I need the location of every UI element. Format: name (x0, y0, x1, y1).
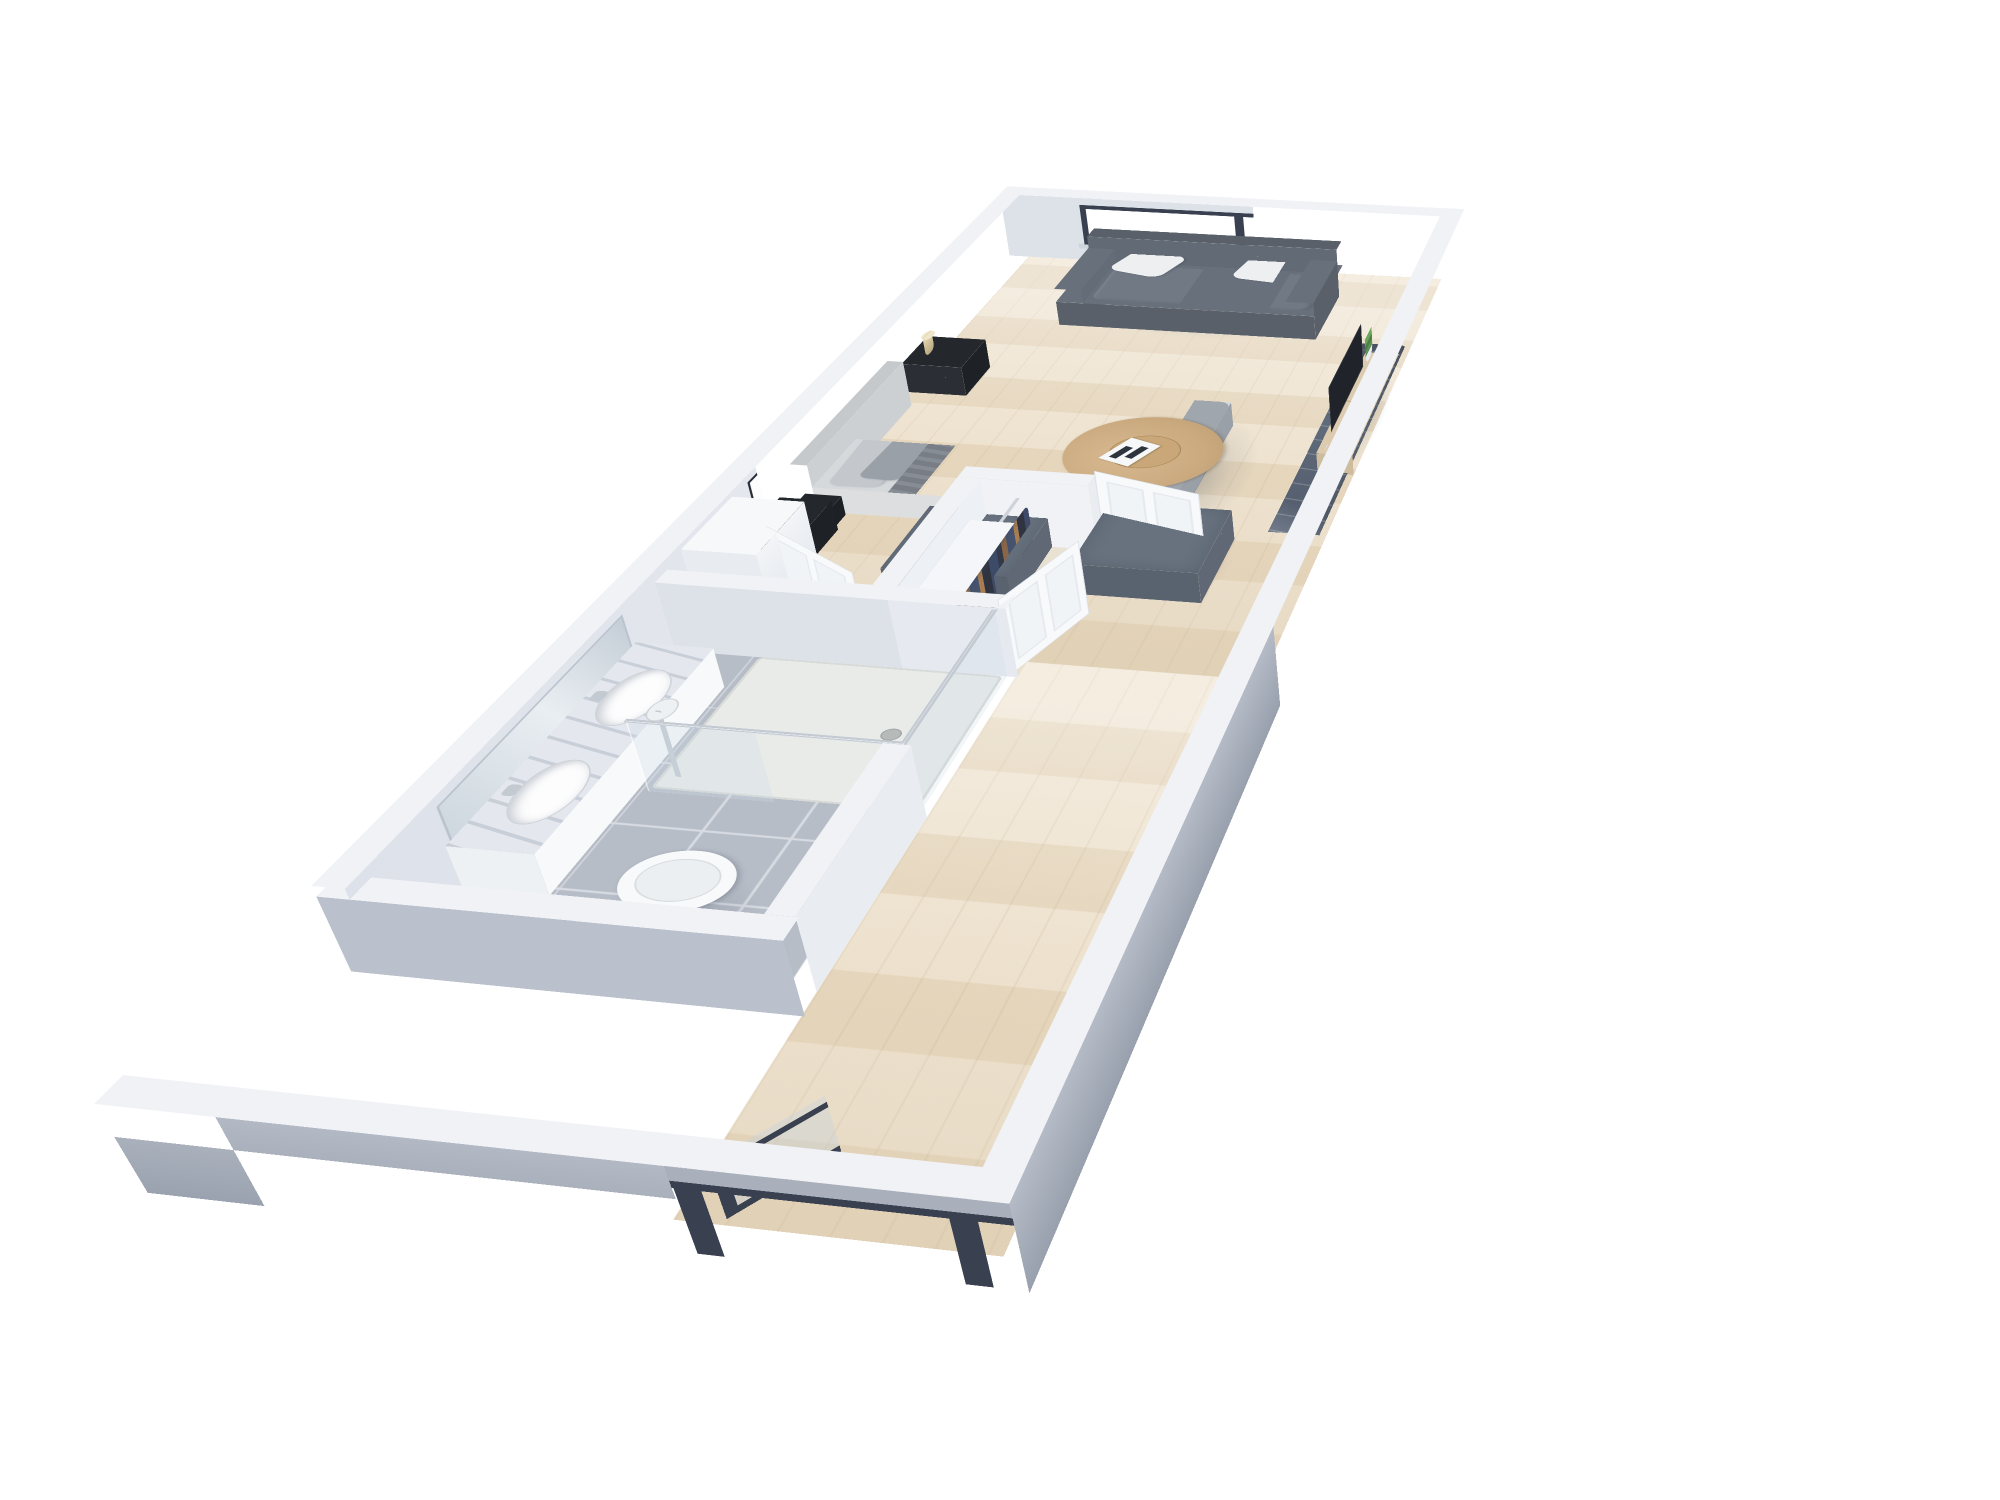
door-panel (1045, 554, 1082, 632)
render-canvas (0, 0, 2000, 1500)
apartment-plan (210, 257, 1441, 1257)
door-panel (1008, 580, 1047, 659)
toilet-seat-opening (621, 856, 734, 906)
